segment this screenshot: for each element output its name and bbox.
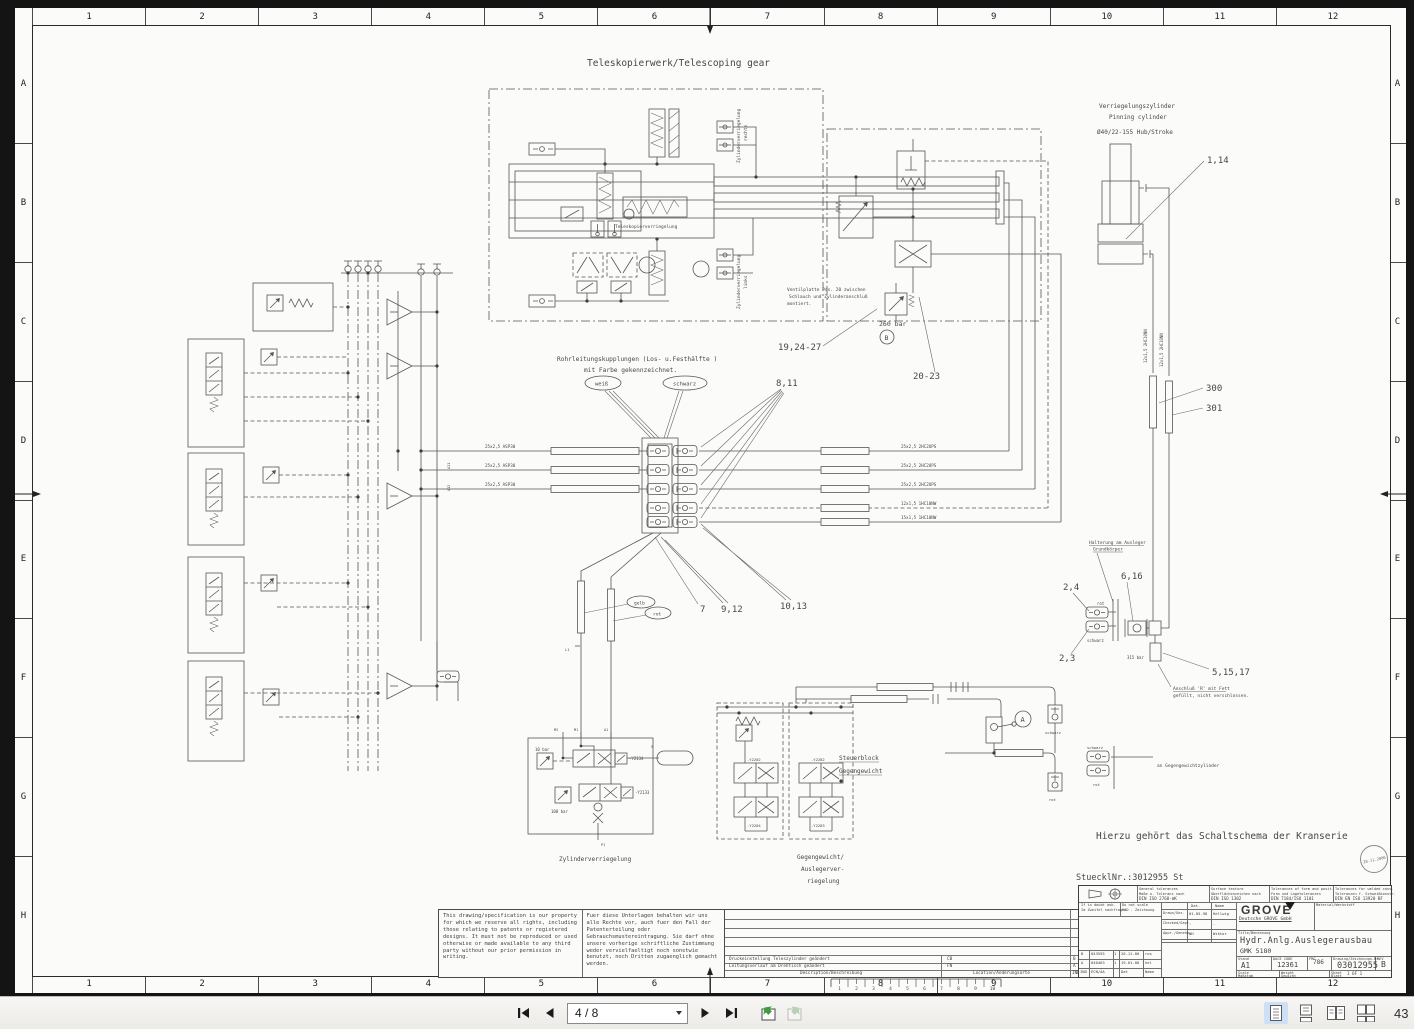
row-label: Checked/Gepr. <box>1163 921 1191 925</box>
solenoid-label: -Y2134 <box>629 756 644 761</box>
note: an Gegengewichtzylinder <box>1157 763 1220 769</box>
ruler-row: G <box>15 737 32 856</box>
single-page-layout-button[interactable] <box>1264 1002 1288 1024</box>
page-number-value: 4 / 8 <box>575 1006 598 1020</box>
vertical-label: Zylinderverriegelung <box>736 109 742 163</box>
port-label: A11 <box>447 463 451 469</box>
facing-layout-button[interactable] <box>1324 1002 1348 1024</box>
format-value: A1 <box>1241 961 1250 970</box>
field-label: Stand <box>1238 957 1249 961</box>
callout: 6,16 <box>1121 572 1143 582</box>
dace-value: 12361 <box>1277 961 1298 969</box>
ruler-row: B <box>1389 143 1406 262</box>
callout: 2,4 <box>1063 583 1079 593</box>
callout: 7 <box>700 605 705 615</box>
ruler-row: A <box>1389 25 1406 143</box>
ruler-col: 1 <box>32 8 145 25</box>
callout: 8,11 <box>776 379 798 389</box>
tolerance-label: Surface texture <box>1211 887 1243 891</box>
ruler-row: E <box>1389 500 1406 619</box>
field-label: DACE CODE <box>1273 957 1292 961</box>
ruler-row: B <box>15 143 32 262</box>
junction-dots <box>346 271 438 718</box>
checked-date: - <box>1189 921 1191 926</box>
previous-view-icon <box>758 1005 778 1022</box>
tolerance-label: Oberflächenzeichen nach <box>1211 892 1261 896</box>
solenoid-label: -Y2283 <box>811 823 825 828</box>
control-block-label: Gegengewicht <box>839 768 883 775</box>
continuous-layout-button[interactable] <box>1294 1002 1318 1024</box>
ruler-col: 6 <box>597 8 710 25</box>
tolerance-din: DIN 7184/ISO 1101 <box>1271 896 1314 901</box>
ruler-corner <box>15 975 32 993</box>
counterweight-circuit: schwarz A rot Steuerblock Gegengewicht s… <box>796 682 1220 802</box>
revision-strip: Druckeinstellung Teleszylinder geändert … <box>724 909 1080 978</box>
telescoping-gear-section: Teleskopierverriegelung Zylinderverriege… <box>489 89 1041 321</box>
hydraulic-schematic: Teleskopierwerk/Telescoping gear Verrieg… <box>33 26 1390 976</box>
cylinder-lock-block: M2 M1 A1 10 bar -Y2134 S 100 bar -Y2133 <box>528 728 693 863</box>
field-label: Blatt <box>1331 974 1342 978</box>
port-label: M1 <box>574 728 578 732</box>
colour-tag-black: schwarz <box>1087 638 1104 643</box>
coupling-manifold: 25x2,5 ASP30 25x2,5 ASP30 25x2,5 ASP30 2… <box>421 376 1061 738</box>
tolerance-label: General tolerances <box>1139 887 1178 891</box>
callout: 1,14 <box>1207 156 1229 166</box>
ruler-row: H <box>15 856 32 975</box>
mini-rev: ECN/ÄA <box>1091 969 1105 974</box>
revision-loc: FN <box>947 964 952 969</box>
tolerance-din: DIN ISO 2768-mK <box>1139 896 1177 901</box>
callout: 19,24-27 <box>778 343 821 353</box>
ruler-row: C <box>1389 262 1406 381</box>
mini-rev: 26-11-00 <box>1121 951 1139 956</box>
grove-subtitle: Deutsche GROVE GmbH <box>1239 917 1292 922</box>
single-page-layout-icon <box>1268 1004 1284 1022</box>
note: Schlauch und Zylinderanschluß <box>789 294 868 300</box>
lock-label: Teleskopierverriegelung <box>615 224 678 230</box>
ruler-col: 7 <box>710 8 823 25</box>
drawing-title: Teleskopierwerk/Telescoping gear <box>587 58 770 69</box>
row-label: Appr./Genehm. <box>1163 931 1191 935</box>
projection-symbol-icon <box>1087 888 1131 900</box>
ruler-row: D <box>15 381 32 500</box>
grove-logo-triangle <box>1285 902 1295 910</box>
viewer-toolbar: 4 / 8 <box>0 996 1414 1029</box>
pinning-label: Pinning cylinder <box>1109 114 1167 121</box>
approved-name: Wiktor <box>1213 931 1227 936</box>
solenoid-label: -Y2282 <box>811 757 825 762</box>
title-label: Title/Benennung <box>1238 931 1270 935</box>
mini-rev: IND <box>1080 969 1087 974</box>
solenoid-label: -Y2202 <box>747 757 761 762</box>
tolerance-label: Maße o. Toleranz nach <box>1139 892 1184 896</box>
mini-rev: 040463 <box>1091 960 1105 965</box>
page-number-combo[interactable]: 4 / 8 <box>567 1003 688 1024</box>
tolerance-label: Tolerances for welded cons. <box>1335 887 1393 891</box>
column-header: Name <box>1215 903 1224 908</box>
colour-tag-black: schwarz <box>673 382 696 388</box>
parts-list-number: StuecklNr.:3012955 St <box>1076 873 1183 883</box>
colour-tag-black: schwarz <box>1087 745 1103 750</box>
port-label: A12 <box>447 485 451 491</box>
pinning-label: Ø40/22-155 Hub/Stroke <box>1097 129 1173 136</box>
pipe-label: 25x2,5 2HC2OPS <box>901 444 937 449</box>
note: gefüllt, nicht verschlossen. <box>1173 693 1249 699</box>
callout: 2,3 <box>1059 654 1075 664</box>
vertical-label: links <box>743 275 749 289</box>
mini-rev: 1 <box>1114 951 1116 956</box>
center-mark-left <box>15 488 42 500</box>
tolerance-din: DIN EN ISO 13920 BF <box>1335 896 1383 901</box>
disclaimer-block: This drawing/specification is our proper… <box>438 909 726 978</box>
ruler-col: 3 <box>258 8 371 25</box>
continuous-layout-icon <box>1298 1004 1314 1022</box>
pinning-cylinder: 12x1,5 2HC10NN 12x1,5 2HC10NN <box>1098 144 1204 601</box>
tolerance-label: Toleranzen f. Schweißkonstr. <box>1335 892 1396 896</box>
left-valve-cluster: A11 A12 <box>188 261 459 771</box>
drawing-number: 03012955 <box>1337 961 1378 971</box>
zoom-level-label: 43 <box>1394 1006 1408 1021</box>
note: Halterung am Ausleger <box>1089 540 1146 546</box>
next-view-icon <box>785 1005 805 1022</box>
mini-rev: Dat <box>1121 969 1128 974</box>
boom-holder-section: Halterung am Ausleger Grundkörper rot sc… <box>1059 540 1250 699</box>
ruler-col: 3 <box>258 975 371 993</box>
revision-loc: CB <box>947 957 952 962</box>
colour-tag-red: rot <box>1049 797 1056 802</box>
revision-desc: Leitungsverlauf am Drehtisch geändert <box>729 964 825 969</box>
note: Ventilplatte Pos. 20 zwischen <box>787 287 866 293</box>
section-label: Gegengewicht/ <box>797 854 844 861</box>
stamp-date: 28.11.2000 <box>1362 854 1385 864</box>
stamp-a: A <box>1021 716 1026 724</box>
ruler-row: F <box>15 618 32 737</box>
note-label: If in doubt ask. <box>1081 903 1116 907</box>
mini-rev: 19-01-00 <box>1121 960 1139 965</box>
approved-date: NH <box>1189 931 1194 936</box>
page-layout-buttons <box>1264 1002 1378 1024</box>
ruler-col: 8 <box>824 8 937 25</box>
previous-page-button[interactable] <box>537 1001 561 1025</box>
vertical-label: Zylinderverriegelung <box>736 255 742 309</box>
title-block: General tolerances Maße o. Toleranz nach… <box>1078 885 1392 978</box>
ruler-row: E <box>15 500 32 619</box>
pipe-label: 25x2,5 2HC2OPS <box>901 482 937 487</box>
mini-rev: hel <box>1145 960 1152 965</box>
mini-rev: 043555 <box>1091 951 1105 956</box>
column-header: Dat. <box>1191 903 1200 908</box>
callout: 5,15,17 <box>1212 668 1250 678</box>
note-label: Im Zweifel nachfragen <box>1081 908 1126 912</box>
ruler-row: F <box>1389 618 1406 737</box>
mini-rev: A <box>1081 960 1083 965</box>
pipe-label: 12x1,5 2HC10NN <box>1143 329 1148 363</box>
first-page-icon <box>516 1007 530 1019</box>
drawing-sheet: 1 2 3 4 5 6 7 8 9 10 11 12 1 2 3 4 5 6 7… <box>15 8 1406 993</box>
pressure-label: 10 bar <box>535 747 550 752</box>
last-page-button[interactable] <box>720 1001 744 1025</box>
colour-tag-red: rot <box>1093 782 1100 787</box>
drawn-name: Hellwig <box>1213 911 1229 916</box>
series-note: Hierzu gehört das Schaltschema der Krans… <box>1096 831 1348 842</box>
drawing-title-sub: GMK 5180 <box>1240 947 1271 955</box>
ruler-col: 5 <box>484 8 597 25</box>
pressure-label: 315 bar <box>1127 655 1144 660</box>
colour-tag-yellow: gelb <box>634 601 645 607</box>
section-label: Auslegerver- <box>801 866 844 873</box>
ruler-row: D <box>1389 381 1406 500</box>
center-mark-bottom <box>704 966 716 993</box>
drawn-date: 01.05.98 <box>1189 911 1207 916</box>
ruler-col: 10 <box>1050 8 1163 25</box>
ruler-right: A B C D E F G H <box>1389 25 1406 975</box>
ruler-row: G <box>1389 737 1406 856</box>
scale-number: 3 <box>872 986 875 991</box>
pipe-label: 25x2,5 ASP30 <box>485 463 516 468</box>
mini-rev: 1 <box>1114 960 1116 965</box>
scale-number: 9 <box>974 986 977 991</box>
note: Rohrleitungskupplungen (Los- u.Festhälft… <box>557 356 717 363</box>
scale-number: 10 <box>990 986 996 991</box>
first-page-button[interactable] <box>511 1001 535 1025</box>
chevron-down-icon <box>676 1011 682 1015</box>
facing-layout-icon <box>1326 1004 1346 1022</box>
revision-ind: B <box>1073 957 1076 962</box>
revision-value: B <box>1381 960 1386 969</box>
port-label: S <box>651 745 653 749</box>
note: Grundkörper <box>1093 547 1123 553</box>
solenoid-label: -Y2204 <box>747 823 761 828</box>
scale-number: 1 <box>838 986 841 991</box>
ruler-corner <box>1389 8 1406 25</box>
date-stamp: 28.11.2000 <box>1360 845 1388 873</box>
control-block-label: Steuerblock <box>839 755 879 762</box>
ruler-col: 9 <box>937 8 1050 25</box>
disclaimer-en: This drawing/specification is our proper… <box>439 910 582 977</box>
note: mit Farbe gekennzeichnet. <box>584 367 677 374</box>
note-label: CAD - Zeichnung <box>1122 908 1154 912</box>
ruler-col: 2 <box>145 975 258 993</box>
view-history-buttons <box>756 1001 807 1025</box>
sheet-value: 1 OF 1 <box>1347 971 1362 976</box>
vertical-label: rechts <box>743 124 749 141</box>
tolerance-label: Tolerances of form and posit. <box>1271 887 1334 891</box>
port-label: M2 <box>554 728 558 732</box>
note-label: Do not scale <box>1122 903 1148 907</box>
section-label: riegelung <box>807 878 840 885</box>
mini-rev: B <box>1081 951 1083 956</box>
pipe-label: 12x1,5 2HC10NN <box>1159 333 1164 367</box>
facing-continuous-layout-button[interactable] <box>1354 1002 1378 1024</box>
callout: 301 <box>1206 404 1222 414</box>
ruler-col: 1 <box>32 975 145 993</box>
row-label: Drawn/Gez. <box>1163 911 1185 915</box>
scale-number: 7 <box>940 986 943 991</box>
last-page-icon <box>725 1007 739 1019</box>
colour-tag-red: rot <box>653 612 661 618</box>
solenoid-label: -Y2133 <box>635 790 650 795</box>
scale-number: 6 <box>923 986 926 991</box>
previous-page-icon <box>543 1007 555 1019</box>
revision-desc: Druckeinstellung Teleszylinder geändert <box>729 957 830 962</box>
field-label: Maßstab <box>1238 974 1253 978</box>
center-mark-right <box>1379 488 1406 500</box>
ruler-col: 4 <box>371 8 484 25</box>
tolerance-din: DIN ISO 1302 <box>1211 896 1241 901</box>
ruler-corner <box>15 8 32 25</box>
valve-plate-section: B <box>823 139 1061 522</box>
ruler-col: 11 <box>1163 8 1276 25</box>
ruler-left: A B C D E F G H <box>15 25 32 975</box>
drawing-canvas: Teleskopierwerk/Telescoping gear Verrieg… <box>32 25 1391 977</box>
mini-rev: Name <box>1145 969 1154 974</box>
revision-ind: A <box>1073 964 1076 969</box>
ruler-row: A <box>15 25 32 143</box>
next-page-button[interactable] <box>694 1001 718 1025</box>
colour-tag-red: rot <box>1097 601 1105 606</box>
facing-continuous-layout-icon <box>1356 1004 1376 1022</box>
material-label: Material/Werkstoff <box>1316 903 1355 907</box>
scale-number: 8 <box>957 986 960 991</box>
pressure-label: 100 bar <box>551 809 568 814</box>
section-label: Zylinderverriegelung <box>559 856 632 863</box>
drawing-title-main: Hydr.Anlg.Auslegerausbau <box>1240 936 1372 946</box>
scale-number: 2 <box>855 986 858 991</box>
note: Anschluß 'R' mit Fett <box>1173 686 1230 692</box>
previous-view-button[interactable] <box>756 1001 780 1025</box>
callout: 9,12 <box>721 605 743 615</box>
tolerance-label: Form und Lagetoleranzen <box>1271 892 1321 896</box>
ruler-col: 12 <box>1276 8 1389 25</box>
counterweight-valve-modules: -Y2202 -Y2204 -Y2282 -Y2283 Gegengewicht… <box>717 703 853 885</box>
scale-number: 5 <box>906 986 909 991</box>
port-label: A1 <box>604 728 608 732</box>
callout: 10,13 <box>780 602 807 612</box>
pipe-label: 12x1,5 1HC10NW <box>901 501 937 506</box>
colour-tag-black: schwarz <box>1045 730 1061 735</box>
checked-name: - <box>1213 921 1215 926</box>
field-label: Gewicht <box>1281 974 1296 978</box>
callout: 20-23 <box>913 372 940 382</box>
scale-number: 4 <box>889 986 892 991</box>
pinning-label: Verriegelungszylinder <box>1099 103 1175 110</box>
pipe-label: 15x1,5 1HC10NW <box>901 515 937 520</box>
port-label: L1 <box>565 647 570 652</box>
colour-tag-white: weiß <box>595 382 609 388</box>
page-navigation: 4 / 8 <box>511 1001 807 1025</box>
fmc-value: 786 <box>1313 959 1324 966</box>
mini-rev: ros <box>1145 951 1152 956</box>
ruler-col: 2 <box>145 8 258 25</box>
pipe-label: 25x2,5 2HC2OPS <box>901 463 937 468</box>
next-view-button[interactable] <box>783 1001 807 1025</box>
stamp-b: B <box>885 334 889 342</box>
port-label: P1 <box>601 843 605 847</box>
scale-ruler: 1 2 3 4 5 6 7 8 9 10 <box>830 975 1002 991</box>
pipe-label: 25x2,5 ASP30 <box>485 444 516 449</box>
ruler-row: C <box>15 262 32 381</box>
next-page-icon <box>700 1007 712 1019</box>
callout: 300 <box>1206 384 1222 394</box>
pipe-label: 25x2,5 ASP30 <box>485 482 516 487</box>
note: montiert. <box>787 301 811 307</box>
center-mark-top <box>704 8 716 35</box>
